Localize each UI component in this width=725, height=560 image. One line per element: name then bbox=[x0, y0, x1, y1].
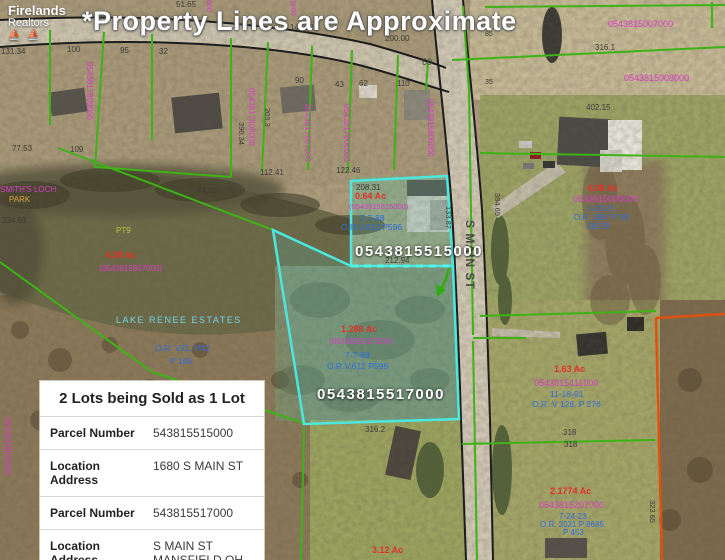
row-value: 1680 S MAIN ST bbox=[149, 450, 264, 496]
row-label: Location Address bbox=[40, 450, 149, 496]
table-row: Location Address S MAIN ST MANSFIELD OH … bbox=[40, 529, 264, 560]
table-title: 2 Lots being Sold as 1 Lot bbox=[40, 381, 264, 416]
logo-line2: Realtors bbox=[8, 18, 66, 30]
firelands-logo: Firelands Realtors ⛵ ⛵ bbox=[8, 4, 66, 42]
table-row: Parcel Number 543815517000 bbox=[40, 496, 264, 529]
parcel-515-outline bbox=[351, 176, 453, 266]
row-label: Parcel Number bbox=[40, 417, 149, 449]
row-value: 543815517000 bbox=[149, 497, 264, 529]
logo-line1: Firelands bbox=[8, 4, 66, 18]
sailboat-icons: ⛵ ⛵ bbox=[8, 31, 66, 42]
map-title: *Property Lines are Approximate bbox=[82, 6, 562, 37]
property-map: 51.65146.51131.34100953277.5310990436211… bbox=[0, 0, 725, 560]
row-value: S MAIN ST MANSFIELD OH 44907 bbox=[149, 530, 264, 560]
table-row: Location Address 1680 S MAIN ST bbox=[40, 449, 264, 496]
row-label: Parcel Number bbox=[40, 497, 149, 529]
table-row: Parcel Number 543815515000 bbox=[40, 416, 264, 449]
parcel-info-table: 2 Lots being Sold as 1 Lot Parcel Number… bbox=[40, 381, 264, 560]
row-value: 543815515000 bbox=[149, 417, 264, 449]
row-label: Location Address bbox=[40, 530, 149, 560]
